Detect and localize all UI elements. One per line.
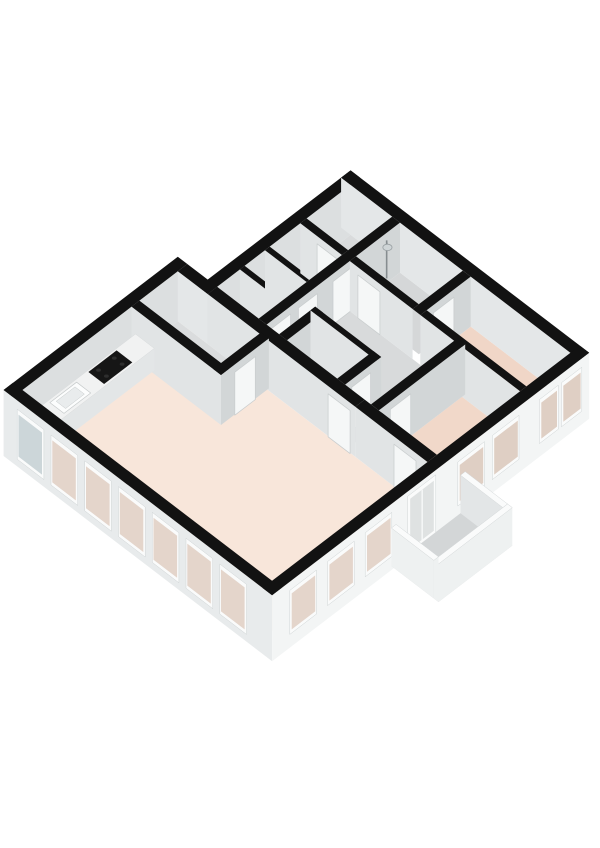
cooktop-burner (104, 375, 109, 378)
cooktop-burner (96, 369, 101, 372)
balcony-door-mullion (422, 489, 423, 540)
cooktop-burner (112, 357, 117, 360)
balcony-rail-west-face-se (434, 557, 439, 599)
floorplan-svg (0, 0, 600, 848)
shower-head (383, 244, 392, 250)
cooktop-burner (120, 363, 125, 366)
floorplan-3d-view (0, 0, 600, 848)
